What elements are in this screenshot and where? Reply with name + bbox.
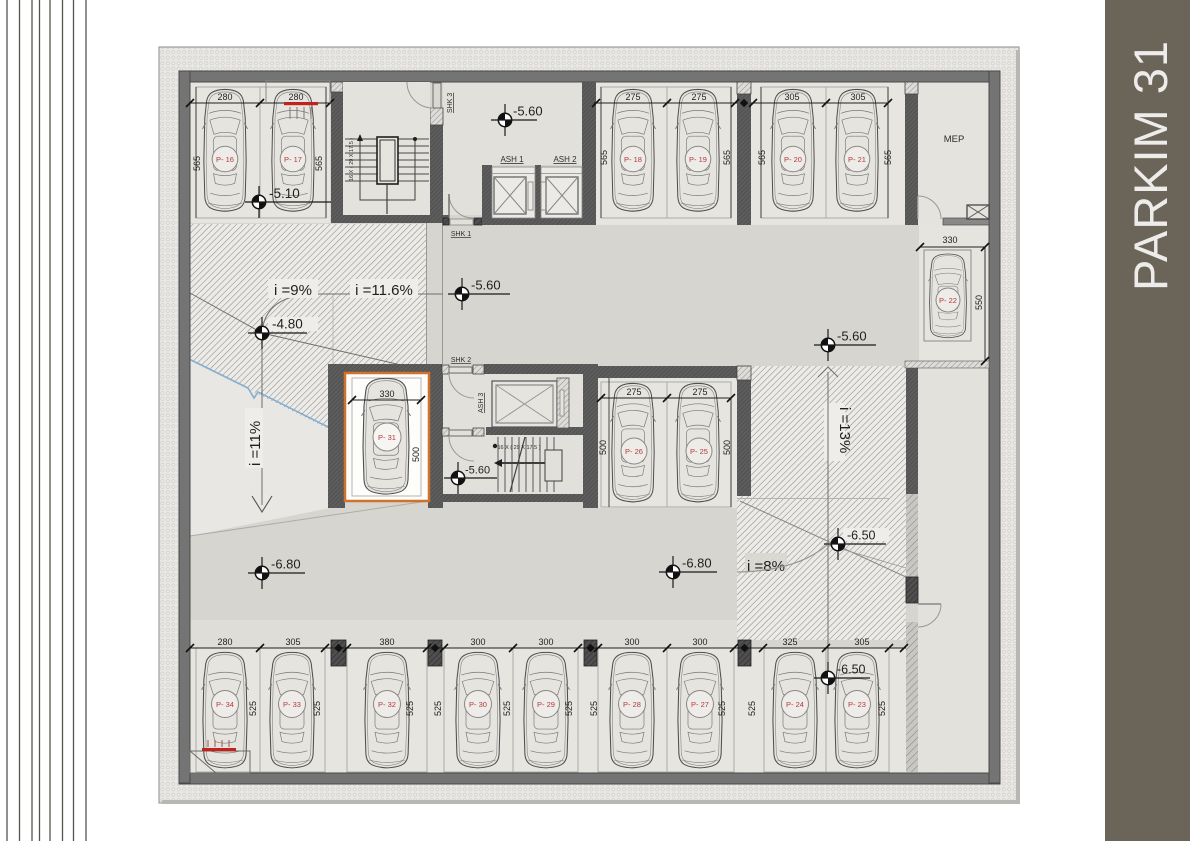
svg-text:SHK 3: SHK 3 <box>447 93 454 113</box>
svg-text:525: 525 <box>564 701 574 716</box>
svg-text:565: 565 <box>599 150 609 165</box>
svg-text:ASH 3: ASH 3 <box>478 393 485 413</box>
svg-text:i =9%: i =9% <box>274 282 312 299</box>
svg-text:525: 525 <box>502 701 512 716</box>
svg-text:P- 32: P- 32 <box>378 700 396 709</box>
svg-text:330: 330 <box>942 235 957 245</box>
svg-text:P- 34: P- 34 <box>216 700 234 709</box>
svg-text:525: 525 <box>405 701 415 716</box>
svg-text:P- 31: P- 31 <box>378 433 396 442</box>
svg-text:300: 300 <box>538 637 553 647</box>
svg-text:P- 22: P- 22 <box>939 296 957 305</box>
svg-text:P- 18: P- 18 <box>624 155 642 164</box>
svg-text:-5.60: -5.60 <box>837 329 867 344</box>
svg-text:300: 300 <box>624 637 639 647</box>
svg-text:565: 565 <box>722 150 732 165</box>
svg-text:275: 275 <box>691 92 706 102</box>
svg-text:565: 565 <box>757 150 767 165</box>
svg-text:525: 525 <box>248 701 258 716</box>
svg-text:i =13%: i =13% <box>836 407 853 453</box>
svg-text:525: 525 <box>433 701 443 716</box>
svg-text:P- 28: P- 28 <box>623 700 641 709</box>
svg-text:525: 525 <box>717 701 727 716</box>
svg-text:305: 305 <box>854 637 869 647</box>
svg-text:-6.50: -6.50 <box>847 529 876 543</box>
svg-text:ASH 2: ASH 2 <box>553 155 577 164</box>
svg-text:P- 23: P- 23 <box>848 700 866 709</box>
svg-text:380: 380 <box>379 637 394 647</box>
svg-text:-5.60: -5.60 <box>465 465 490 477</box>
svg-text:280: 280 <box>217 637 232 647</box>
svg-text:P- 29: P- 29 <box>537 700 555 709</box>
svg-text:280: 280 <box>217 92 232 102</box>
svg-text:305: 305 <box>850 92 865 102</box>
svg-text:525: 525 <box>312 701 322 716</box>
svg-text:550: 550 <box>974 295 984 310</box>
svg-text:275: 275 <box>626 387 641 397</box>
svg-text:-6.80: -6.80 <box>682 556 712 571</box>
svg-text:P- 30: P- 30 <box>469 700 487 709</box>
svg-text:-5.60: -5.60 <box>513 104 543 119</box>
svg-text:-6.80: -6.80 <box>271 557 301 572</box>
svg-text:525: 525 <box>877 701 887 716</box>
svg-text:300: 300 <box>692 637 707 647</box>
svg-text:MEP: MEP <box>944 134 965 145</box>
svg-text:500: 500 <box>411 447 421 462</box>
svg-text:-5.10: -5.10 <box>269 186 300 201</box>
svg-text:305: 305 <box>285 637 300 647</box>
svg-text:P- 26: P- 26 <box>625 447 643 456</box>
svg-text:SHK 2: SHK 2 <box>451 357 471 364</box>
svg-text:565: 565 <box>314 156 324 171</box>
svg-text:i =8%: i =8% <box>747 558 785 575</box>
svg-text:330: 330 <box>379 389 394 399</box>
svg-text:275: 275 <box>625 92 640 102</box>
svg-text:-5.60: -5.60 <box>471 278 501 293</box>
svg-text:16 X ( 29 X 17.5 ): 16 X ( 29 X 17.5 ) <box>497 445 540 451</box>
svg-text:SHK 1: SHK 1 <box>451 231 471 238</box>
svg-text:565: 565 <box>192 156 202 171</box>
svg-text:P- 16: P- 16 <box>216 155 234 164</box>
svg-text:305: 305 <box>784 92 799 102</box>
svg-text:-4.80: -4.80 <box>272 317 303 332</box>
svg-text:PARKIM 31: PARKIM 31 <box>1124 40 1177 291</box>
svg-text:P- 20: P- 20 <box>784 155 802 164</box>
svg-text:275: 275 <box>692 387 707 397</box>
svg-text:325: 325 <box>782 637 797 647</box>
svg-text:300: 300 <box>470 637 485 647</box>
svg-text:P- 33: P- 33 <box>283 700 301 709</box>
svg-text:280: 280 <box>288 92 303 102</box>
svg-text:ASH 1: ASH 1 <box>500 155 524 164</box>
svg-text:P- 19: P- 19 <box>689 155 707 164</box>
svg-text:500: 500 <box>722 440 732 455</box>
svg-text:P- 21: P- 21 <box>848 155 866 164</box>
svg-text:i =11%: i =11% <box>247 421 264 466</box>
svg-text:i =11.6%: i =11.6% <box>355 282 413 299</box>
svg-text:500: 500 <box>598 440 608 455</box>
svg-text:P- 24: P- 24 <box>786 700 804 709</box>
svg-text:P- 27: P- 27 <box>691 700 709 709</box>
svg-text:-6.50: -6.50 <box>837 663 866 677</box>
svg-text:16 X ( 29 X 17.5 ): 16 X ( 29 X 17.5 ) <box>349 138 355 181</box>
svg-text:525: 525 <box>589 701 599 716</box>
svg-text:P- 25: P- 25 <box>690 447 708 456</box>
svg-text:525: 525 <box>747 701 757 716</box>
svg-text:P- 17: P- 17 <box>284 155 302 164</box>
